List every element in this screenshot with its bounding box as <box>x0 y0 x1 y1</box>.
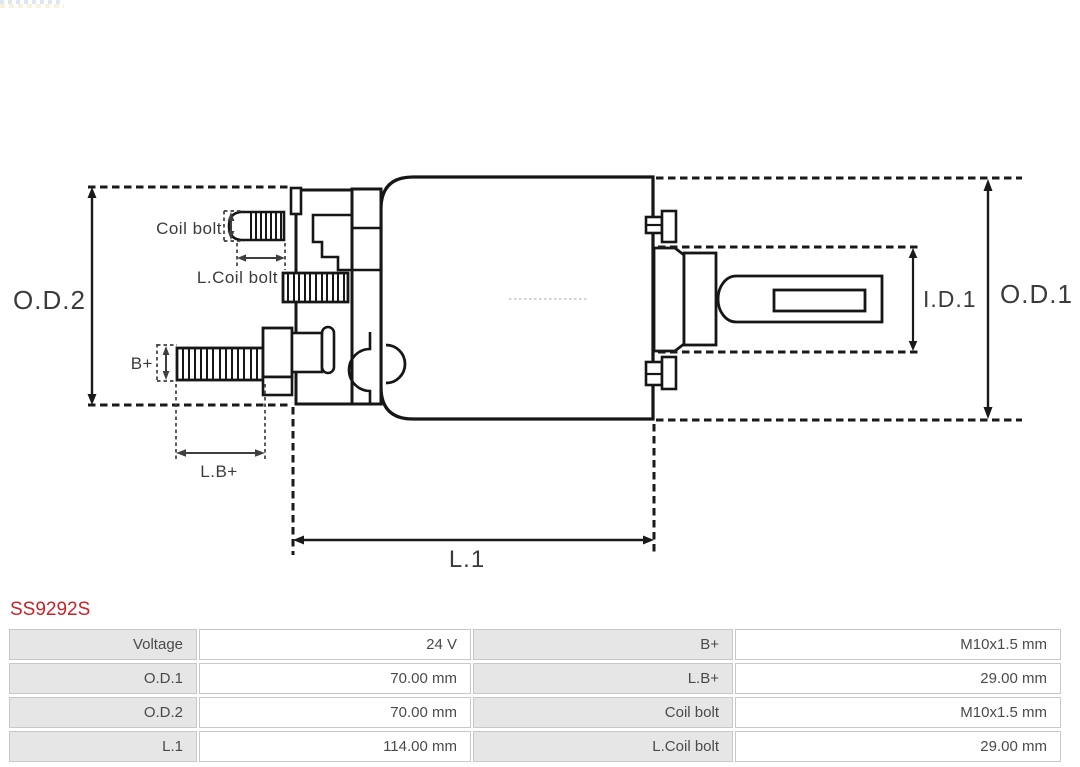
spec-label-cell: Voltage <box>9 629 197 660</box>
spec-label-cell: Coil bolt <box>473 697 733 728</box>
od2-label: O.D.2 <box>13 285 86 315</box>
l-b-plus-label: L.B+ <box>200 462 237 481</box>
od1-label: O.D.1 <box>1000 279 1073 309</box>
table-row: Voltage 24 V B+ M10x1.5 mm <box>9 629 1061 660</box>
spec-label-cell: L.B+ <box>473 663 733 694</box>
b-plus-dimension <box>157 344 177 382</box>
spec-label-cell: L.Coil bolt <box>473 731 733 762</box>
shaft-slot <box>774 290 865 311</box>
b-plus-bushing <box>292 333 322 372</box>
table-row: O.D.2 70.00 mm Coil bolt M10x1.5 mm <box>9 697 1061 728</box>
part-number-heading: SS9292S <box>10 598 90 622</box>
l-b-plus-dimension <box>176 384 265 461</box>
b-plus-nut-lower <box>263 377 292 395</box>
coil-bolt-threads <box>251 213 281 239</box>
spec-label-cell: B+ <box>473 629 733 660</box>
coil-bolt-label: Coil bolt <box>156 219 222 238</box>
spec-label-cell: O.D.2 <box>9 697 197 728</box>
l1-label: L.1 <box>449 546 485 573</box>
nose-and-shaft <box>654 248 882 351</box>
spec-label-cell: L.1 <box>9 731 197 762</box>
spec-table: Voltage 24 V B+ M10x1.5 mm O.D.1 70.00 m… <box>7 626 1063 765</box>
spec-label-cell: O.D.1 <box>9 663 197 694</box>
b-plus-washer <box>322 327 334 373</box>
spec-value-cell: M10x1.5 mm <box>735 697 1061 728</box>
nose-flange <box>654 248 684 351</box>
spec-value-cell: 70.00 mm <box>199 697 471 728</box>
l1-dimension <box>293 407 654 555</box>
table-row: O.D.1 70.00 mm L.B+ 29.00 mm <box>9 663 1061 694</box>
b-plus-label: B+ <box>131 354 153 373</box>
spec-value-cell: 24 V <box>199 629 471 660</box>
nose-collar <box>684 253 716 345</box>
table-row: L.1 114.00 mm L.Coil bolt 29.00 mm <box>9 731 1061 762</box>
spec-value-cell: 29.00 mm <box>735 663 1061 694</box>
product-page: O.D.2 Coil bo <box>0 0 1080 767</box>
solenoid-body <box>381 177 653 419</box>
b-plus-nut <box>263 328 292 377</box>
spec-value-cell: 29.00 mm <box>735 731 1061 762</box>
bracket-top-tab <box>291 188 301 214</box>
l-coil-bolt-label: L.Coil bolt <box>197 268 278 287</box>
spec-value-cell: 70.00 mm <box>199 663 471 694</box>
id1-label: I.D.1 <box>923 286 977 312</box>
spec-value-cell: M10x1.5 mm <box>735 629 1061 660</box>
l-coil-bolt-dimension <box>237 243 285 270</box>
spec-value-cell: 114.00 mm <box>199 731 471 762</box>
solenoid-technical-drawing: O.D.2 Coil bo <box>0 0 1080 592</box>
